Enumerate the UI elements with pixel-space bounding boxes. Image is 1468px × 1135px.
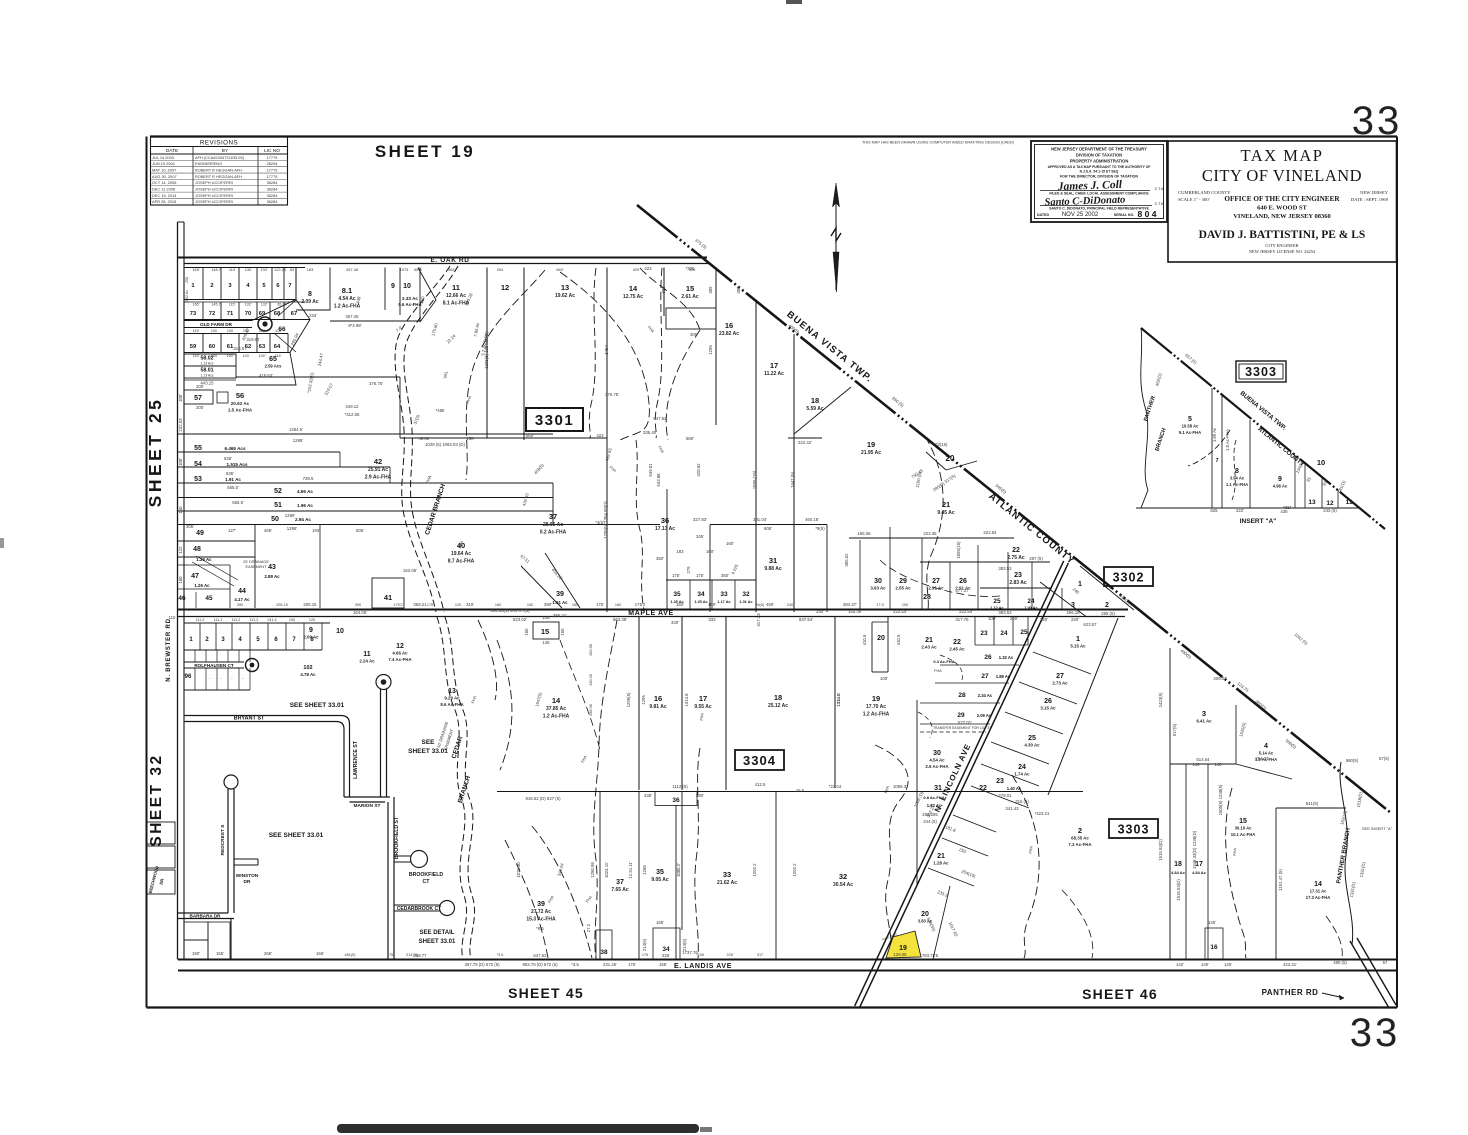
svg-text:32: 32 <box>839 872 847 881</box>
svg-text:165: 165 <box>572 603 578 607</box>
svg-text:383.53: 383.53 <box>998 610 1012 615</box>
svg-text:SHEET 25: SHEET 25 <box>145 397 165 508</box>
svg-text:REDCREST S: REDCREST S <box>220 824 226 856</box>
svg-text:100: 100 <box>211 354 217 358</box>
svg-text:19: 19 <box>872 694 880 703</box>
svg-text:0.2 Ac-FHA: 0.2 Ac-FHA <box>540 529 567 535</box>
svg-text:25: 25 <box>993 598 1001 605</box>
svg-text:1.00 Ac: 1.00 Ac <box>1024 606 1037 610</box>
svg-text:165': 165' <box>192 267 199 272</box>
svg-text:CEDARBROOK CT: CEDARBROOK CT <box>397 906 441 912</box>
svg-text:36284: 36284 <box>267 199 279 204</box>
svg-text:480 (5): 480 (5) <box>1333 960 1347 965</box>
svg-text:193': 193' <box>312 528 320 533</box>
svg-text:16: 16 <box>654 694 662 703</box>
svg-text:*23.04: *23.04 <box>829 784 842 789</box>
svg-text:68.35 Ac: 68.35 Ac <box>1071 836 1089 841</box>
svg-text:1.2 Ac-FHA: 1.2 Ac-FHA <box>863 711 890 717</box>
svg-text:305': 305' <box>690 332 698 337</box>
svg-text:25: 25 <box>1020 629 1028 636</box>
svg-text:FHA: FHA <box>1233 847 1238 855</box>
svg-text:523.02': 523.02' <box>513 617 527 622</box>
svg-text:390': 390' <box>544 602 552 607</box>
svg-text:2.34 Ac: 2.34 Ac <box>978 693 993 698</box>
svg-text:12: 12 <box>396 643 404 650</box>
svg-text:222.54': 222.54' <box>959 609 973 614</box>
svg-text:1.89 Ac: 1.89 Ac <box>996 674 1011 679</box>
svg-text:11: 11 <box>1346 499 1353 506</box>
svg-text:391.04': 391.04' <box>753 517 767 522</box>
svg-text:NOV 25 2002: NOV 25 2002 <box>1062 212 1099 218</box>
svg-text:825: 825 <box>1210 508 1218 513</box>
svg-text:11: 11 <box>452 283 460 292</box>
svg-text:12: 12 <box>501 283 509 292</box>
svg-text:837.54': 837.54' <box>799 617 813 622</box>
svg-text:783.75'5: 783.75'5 <box>922 953 939 958</box>
svg-text:37: 37 <box>549 512 557 521</box>
svg-text:8: 8 <box>308 291 312 298</box>
svg-text:22: 22 <box>979 785 987 792</box>
svg-text:165: 165 <box>524 628 529 636</box>
svg-text:EASEMENT: EASEMENT <box>246 565 268 569</box>
svg-text:541(5): 541(5) <box>1306 801 1319 806</box>
svg-text:*3.5: *3.5 <box>571 962 579 967</box>
svg-text:1334.0: 1334.0 <box>836 693 841 707</box>
svg-text:1295: 1295 <box>641 695 646 705</box>
svg-text:30.19 Ac: 30.19 Ac <box>1235 825 1253 830</box>
svg-text:41: 41 <box>384 593 392 602</box>
svg-text:DAVID J. BATTISTINI, PE & LS: DAVID J. BATTISTINI, PE & LS <box>1199 229 1366 241</box>
svg-text:132': 132' <box>245 303 252 307</box>
svg-text:4.17 Ac: 4.17 Ac <box>234 597 250 602</box>
svg-text:TRANSFER EASEMENT FOR LOT 31: TRANSFER EASEMENT FOR LOT 31 <box>933 726 991 730</box>
svg-text:SEE: SEE <box>421 739 435 746</box>
svg-text:42: 42 <box>374 457 382 466</box>
svg-text:7.4 Ac-FHA: 7.4 Ac-FHA <box>388 657 412 662</box>
svg-text:1284.5': 1284.5' <box>289 427 303 432</box>
svg-text:111.1: 111.1 <box>214 618 223 622</box>
svg-text:10: 10 <box>1317 458 1325 467</box>
svg-text:241.4: 241.4 <box>267 618 276 622</box>
svg-text:2.45 Ac: 2.45 Ac <box>949 647 965 652</box>
svg-text:13: 13 <box>561 283 569 292</box>
svg-text:15: 15 <box>541 627 549 636</box>
svg-text:1095 (15): 1095 (15) <box>752 470 757 489</box>
svg-text:100: 100 <box>211 329 217 333</box>
svg-text:ROLFHAUSEN CT: ROLFHAUSEN CT <box>194 663 233 668</box>
svg-text:3303: 3303 <box>1245 365 1277 379</box>
svg-text:14: 14 <box>629 284 638 293</box>
svg-text:264: 264 <box>497 267 504 272</box>
svg-text:115': 115' <box>229 303 236 307</box>
svg-text:36284: 36284 <box>267 193 279 198</box>
svg-text:2: 2 <box>210 283 213 289</box>
svg-text:*8(5): *8(5) <box>756 603 765 607</box>
svg-text:279: 279 <box>686 566 691 574</box>
svg-text:127': 127' <box>228 528 236 533</box>
svg-text:1250.98: 1250.98 <box>590 862 595 878</box>
svg-text:487 (5): 487 (5) <box>1029 556 1043 561</box>
svg-text:44: 44 <box>238 588 246 595</box>
svg-text:20.62 Ac: 20.62 Ac <box>231 401 250 406</box>
svg-text:2.89 Ac: 2.89 Ac <box>264 574 280 579</box>
svg-text:BROOKFIELD ST: BROOKFIELD ST <box>394 816 400 859</box>
svg-text:54: 54 <box>194 461 202 468</box>
svg-text:CUMBERLAND COUNTY: CUMBERLAND COUNTY <box>1178 190 1231 195</box>
svg-text:623.57: 623.57 <box>1083 622 1097 627</box>
svg-text:8 0 4: 8 0 4 <box>1138 209 1157 219</box>
svg-text:1447 (5): 1447 (5) <box>790 471 795 488</box>
svg-text:818.52 (D) 827 (5): 818.52 (D) 827 (5) <box>525 796 561 801</box>
svg-text:23: 23 <box>980 630 988 637</box>
svg-text:10: 10 <box>336 628 344 635</box>
svg-text:140: 140 <box>1192 762 1200 767</box>
svg-text:660': 660' <box>526 433 534 438</box>
svg-text:429: 429 <box>633 267 640 272</box>
svg-text:40: 40 <box>457 541 465 550</box>
svg-text:155': 155' <box>659 962 667 967</box>
svg-text:MAY 10, 2007: MAY 10, 2007 <box>152 167 176 172</box>
svg-text:36: 36 <box>672 797 680 804</box>
svg-text:222.42': 222.42' <box>798 440 812 445</box>
svg-text:*3.5: *3.5 <box>497 953 504 957</box>
svg-text:200': 200' <box>1010 616 1018 621</box>
svg-text:3.94 Ac: 3.94 Ac <box>1230 475 1245 480</box>
svg-text:175'2: 175'2 <box>635 602 646 607</box>
svg-text:16.5: 16.5 <box>796 788 805 793</box>
svg-text:3: 3 <box>1202 709 1206 718</box>
svg-text:17775: 17775 <box>267 167 278 172</box>
svg-text:234': 234' <box>309 313 317 318</box>
svg-text:464.53(5) 444 4.7(3): 464.53(5) 444 4.7(3) <box>490 608 530 613</box>
svg-text:29: 29 <box>957 712 965 719</box>
svg-text:258: 258 <box>185 277 189 283</box>
svg-text:SCALE 1″ - 300′: SCALE 1″ - 300′ <box>1178 197 1210 202</box>
svg-text:MARION ST: MARION ST <box>354 803 381 809</box>
svg-text:N.J.S.A. 54:1-15 ET SEQ: N.J.S.A. 54:1-15 ET SEQ <box>1080 170 1119 174</box>
svg-text:28.65 Ac: 28.65 Ac <box>543 522 563 528</box>
svg-text:OLD FARM DR: OLD FARM DR <box>200 322 233 327</box>
svg-text:53: 53 <box>194 476 202 483</box>
svg-text:17.70 Ac: 17.70 Ac <box>866 704 886 710</box>
svg-text:1295(5): 1295(5) <box>626 692 631 707</box>
svg-text:150': 150' <box>676 602 684 607</box>
svg-text:WINSTON: WINSTON <box>236 873 259 879</box>
svg-text:10: 10 <box>403 283 411 290</box>
svg-text:160: 160 <box>178 576 183 584</box>
svg-text:2.55 Ac: 2.55 Ac <box>895 586 911 591</box>
svg-text:140: 140 <box>1214 762 1222 767</box>
svg-text:9.29 Ac: 9.29 Ac <box>444 696 460 701</box>
svg-text:423: 423 <box>644 266 652 271</box>
svg-text:21.62 Ac: 21.62 Ac <box>717 880 737 886</box>
svg-text:3304: 3304 <box>743 753 776 768</box>
svg-text:30.54 Ac: 30.54 Ac <box>833 882 853 888</box>
svg-text:DEC 11 2008: DEC 11 2008 <box>152 187 175 192</box>
svg-text:3.15 Ac: 3.15 Ac <box>1040 706 1056 711</box>
svg-text:5.14 Ac: 5.14 Ac <box>1259 750 1274 755</box>
svg-text:9.88 Ac: 9.88 Ac <box>764 566 782 572</box>
svg-text:148.7: 148.7 <box>211 267 221 272</box>
svg-text:243 (5): 243 (5) <box>1323 508 1337 513</box>
svg-text:1295: 1295 <box>708 345 713 355</box>
svg-text:1.2 Ac-FHA: 1.2 Ac-FHA <box>543 713 570 719</box>
svg-text:200': 200' <box>196 405 204 410</box>
svg-text:BROOKFIELD: BROOKFIELD <box>409 872 444 878</box>
svg-text:100: 100 <box>289 618 295 622</box>
svg-text:660': 660' <box>686 436 694 441</box>
svg-text:71: 71 <box>227 311 234 317</box>
svg-text:12.75 Ac: 12.75 Ac <box>623 294 643 300</box>
svg-text:345': 345' <box>696 534 704 539</box>
svg-text:59: 59 <box>190 344 197 350</box>
svg-text:APR 28, 2015: APR 28, 2015 <box>152 199 176 204</box>
svg-text:17.13 Ac: 17.13 Ac <box>655 526 675 532</box>
svg-text:635': 635' <box>226 471 234 476</box>
svg-text:1295': 1295' <box>287 526 298 531</box>
svg-text:175': 175' <box>628 962 636 967</box>
svg-text:LIC NO: LIC NO <box>264 148 280 154</box>
svg-text:1292.2: 1292.2 <box>792 863 797 877</box>
svg-text:21: 21 <box>937 853 945 860</box>
svg-text:11: 11 <box>363 651 371 658</box>
svg-text:577.37: 577.37 <box>955 588 969 593</box>
svg-text:1.5 Ac-FHA: 1.5 Ac-FHA <box>228 408 253 413</box>
svg-text:376.75': 376.75' <box>605 392 619 397</box>
svg-text:65.75: 65.75 <box>277 303 286 307</box>
svg-text:335.40': 335.40' <box>643 430 657 435</box>
svg-text:1515.53(D): 1515.53(D) <box>1158 839 1163 861</box>
svg-text:2.94 Ac: 2.94 Ac <box>295 517 311 522</box>
svg-text:33: 33 <box>1352 99 1403 143</box>
svg-text:SHEET 46: SHEET 46 <box>1082 986 1158 1002</box>
svg-text:SHEET 45: SHEET 45 <box>508 985 584 1001</box>
svg-text:17.5: 17.5 <box>876 603 883 607</box>
svg-text:34: 34 <box>662 946 670 953</box>
svg-text:1075: 1075 <box>400 267 409 272</box>
svg-text:460.18': 460.18' <box>805 517 819 522</box>
svg-text:305': 305' <box>186 524 194 529</box>
svg-text:327.83': 327.83' <box>693 517 707 522</box>
svg-text:505': 505' <box>356 528 364 533</box>
svg-text:130: 130 <box>245 267 252 272</box>
svg-text:4.78 Ac: 4.78 Ac <box>300 672 316 677</box>
svg-text:1112 (5): 1112 (5) <box>672 784 688 789</box>
svg-text:120: 120 <box>309 618 315 622</box>
svg-text:27.72 Ac: 27.72 Ac <box>531 909 551 915</box>
svg-text:33: 33 <box>720 591 728 598</box>
svg-text:104': 104' <box>259 354 266 358</box>
svg-text:1080.2': 1080.2' <box>676 863 681 877</box>
svg-text:226': 226' <box>662 953 670 958</box>
svg-text:3.93 Ac: 3.93 Ac <box>870 586 886 591</box>
svg-text:222.54': 222.54' <box>893 609 907 614</box>
svg-text:17: 17 <box>699 694 707 703</box>
svg-text:4.84 Ac: 4.84 Ac <box>1192 870 1207 875</box>
svg-text:27: 27 <box>932 578 940 585</box>
svg-text:47: 47 <box>191 573 199 580</box>
svg-text:4.66 Ac: 4.66 Ac <box>392 651 408 656</box>
svg-text:222': 222' <box>1236 508 1244 513</box>
svg-text:436.06: 436.06 <box>589 704 593 716</box>
svg-text:9: 9 <box>309 627 313 634</box>
svg-text:*485: *485 <box>436 408 445 413</box>
svg-text:7.3 Ac-FHA: 7.3 Ac-FHA <box>1068 842 1092 847</box>
svg-text:8: 8 <box>1235 468 1239 475</box>
svg-text:160: 160 <box>615 603 621 607</box>
svg-text:JOSEPH UCCIFERRI: JOSEPH UCCIFERRI <box>195 193 233 198</box>
svg-text:205.15: 205.15 <box>303 602 317 607</box>
svg-text:577.01': 577.01' <box>958 720 972 725</box>
svg-text:VINELAND, NEW JERSEY 08360: VINELAND, NEW JERSEY 08360 <box>1233 213 1331 220</box>
svg-text:2.83 Ac: 2.83 Ac <box>1009 580 1027 586</box>
svg-text:4.30 Ac: 4.30 Ac <box>1024 743 1040 748</box>
svg-text:1.40 Ac: 1.40 Ac <box>1007 786 1022 791</box>
svg-text:150: 150 <box>178 506 183 514</box>
svg-text:1.74 Ac: 1.74 Ac <box>1014 772 1030 777</box>
svg-text:1.01 Ac: 1.01 Ac <box>739 600 752 604</box>
svg-text:132': 132' <box>261 303 268 307</box>
svg-text:12.51.11': 12.51.11' <box>628 861 633 878</box>
svg-text:SHEET 33.01: SHEET 33.01 <box>408 748 448 755</box>
svg-text:7: 7 <box>1215 458 1218 464</box>
svg-text:100: 100 <box>902 603 908 607</box>
svg-text:2.33 Ac: 2.33 Ac <box>402 296 418 301</box>
svg-text:*306: *306 <box>686 266 695 271</box>
svg-text:357.78 (D) 672 (5): 357.78 (D) 672 (5) <box>464 962 500 967</box>
svg-text:30: 30 <box>874 578 882 585</box>
svg-text:*312.55: *312.55 <box>345 412 360 417</box>
svg-text:155': 155' <box>656 920 664 925</box>
svg-text:*49.62: *49.62 <box>417 436 430 441</box>
svg-text:1.1 Ac-FHA: 1.1 Ac-FHA <box>1226 482 1248 487</box>
svg-text:175': 175' <box>596 602 604 607</box>
svg-text:DIVISION OF TAXATION: DIVISION OF TAXATION <box>1076 153 1122 158</box>
svg-text:647.62: 647.62 <box>533 953 547 958</box>
svg-text:1505(5) 1238(5): 1505(5) 1238(5) <box>1218 784 1223 815</box>
svg-text:25: 25 <box>1028 735 1036 742</box>
svg-text:160': 160' <box>706 549 714 554</box>
svg-text:JOSEPH UCCIFERRI: JOSEPH UCCIFERRI <box>195 180 233 185</box>
svg-text:12.66 Ac: 12.66 Ac <box>446 293 466 299</box>
svg-text:67: 67 <box>291 311 297 317</box>
svg-text:130': 130' <box>260 267 267 272</box>
svg-text:12: 12 <box>1326 500 1334 507</box>
svg-text:19.62 Ac: 19.62 Ac <box>555 293 575 299</box>
svg-text:NEW JERSEY LICENSE NO. 24254: NEW JERSEY LICENSE NO. 24254 <box>1249 249 1316 254</box>
svg-text:317.76: 317.76 <box>955 617 969 622</box>
svg-text:457.48: 457.48 <box>346 267 358 272</box>
svg-text:111.2: 111.2 <box>250 618 259 622</box>
svg-text:LAWRENCE ST: LAWRENCE ST <box>353 740 359 779</box>
svg-text:319.67: 319.67 <box>246 337 260 342</box>
svg-text:SANTO C. DIDONATO, PRINCIPAL F: SANTO C. DIDONATO, PRINCIPAL FIELD REPRE… <box>1049 207 1149 211</box>
svg-text:9.05 Ac: 9.05 Ac <box>651 877 669 883</box>
svg-text:2.9 Ac-FHA: 2.9 Ac-FHA <box>365 474 392 480</box>
svg-text:SEE SHEET 33.01: SEE SHEET 33.01 <box>290 702 345 709</box>
svg-text:111.2: 111.2 <box>232 618 241 622</box>
svg-text:175: 175 <box>427 603 433 607</box>
svg-text:164.06': 164.06' <box>353 610 367 615</box>
svg-text:10.1 Ac-FHA: 10.1 Ac-FHA <box>1231 832 1256 837</box>
svg-text:222.35: 222.35 <box>923 531 937 536</box>
svg-text:316 (5): 316 (5) <box>1015 799 1029 804</box>
svg-text:39: 39 <box>556 591 564 598</box>
svg-text:1.02 Ac: 1.02 Ac <box>185 290 189 302</box>
svg-text:13: 13 <box>448 688 456 695</box>
svg-text:200': 200' <box>196 384 204 389</box>
svg-text:1029 (5) 1093.03 (D): 1029 (5) 1093.03 (D) <box>425 442 465 447</box>
svg-text:TAX MAP: TAX MAP <box>1241 146 1324 165</box>
svg-text:DEC 15, 2014: DEC 15, 2014 <box>152 193 177 198</box>
svg-text:E. LANDIS AVE: E. LANDIS AVE <box>674 963 732 970</box>
svg-text:580(5): 580(5) <box>1346 758 1359 763</box>
svg-text:REVISIONS: REVISIONS <box>200 140 238 147</box>
svg-text:83: 83 <box>290 267 294 272</box>
svg-text:18: 18 <box>1174 861 1182 868</box>
svg-text:23: 23 <box>1014 572 1022 579</box>
svg-text:309: 309 <box>661 286 666 294</box>
svg-text:305.52: 305.52 <box>844 553 849 567</box>
svg-text:3301: 3301 <box>535 412 574 429</box>
svg-text:PROPERTY ADMINISTRATION: PROPERTY ADMINISTRATION <box>1070 159 1129 164</box>
svg-text:49: 49 <box>196 530 204 537</box>
svg-text:543.88: 543.88 <box>656 473 661 487</box>
svg-text:555.5': 555.5' <box>227 485 239 490</box>
svg-text:25' DRAINAGE: 25' DRAINAGE <box>243 560 269 564</box>
svg-text:226': 226' <box>726 953 733 957</box>
svg-text:56: 56 <box>236 391 244 400</box>
svg-text:31: 31 <box>934 785 942 792</box>
svg-text:7: 7 <box>288 283 291 289</box>
svg-text:*8.5: *8.5 <box>536 926 544 931</box>
svg-text:17: 17 <box>770 361 778 370</box>
svg-text:214(5): 214(5) <box>642 938 647 951</box>
svg-text:265': 265' <box>264 528 272 533</box>
svg-text:410.5: 410.5 <box>896 634 901 645</box>
svg-text:4.54 Ac: 4.54 Ac <box>929 758 945 763</box>
svg-text:*9(5): *9(5) <box>815 526 825 531</box>
svg-text:953.78 (D) 672 (5): 953.78 (D) 672 (5) <box>522 962 558 967</box>
svg-text:175': 175' <box>696 573 704 578</box>
svg-text:158: 158 <box>466 436 474 441</box>
svg-text:183: 183 <box>307 267 314 272</box>
svg-text:240: 240 <box>787 603 793 607</box>
svg-text:110: 110 <box>169 615 176 620</box>
svg-text:THIS MAP HAS BEEN DRAWN USING: THIS MAP HAS BEEN DRAWN USING COMPUTER A… <box>862 141 1015 145</box>
svg-text:CITY OF VINELAND: CITY OF VINELAND <box>1202 166 1362 185</box>
svg-text:4.65 Ac: 4.65 Ac <box>297 489 313 494</box>
svg-text:73: 73 <box>190 311 197 317</box>
svg-text:N. BREWSTER RD: N. BREWSTER RD <box>166 618 172 682</box>
svg-text:22: 22 <box>953 639 961 646</box>
svg-text:5.15 Ac: 5.15 Ac <box>1070 644 1086 649</box>
svg-text:23: 23 <box>996 778 1004 785</box>
svg-text:*4(5): *4(5) <box>595 520 605 525</box>
svg-text:DATE : SEPT. 1969: DATE : SEPT. 1969 <box>1351 197 1389 202</box>
svg-text:57: 57 <box>1383 960 1388 965</box>
svg-text:43: 43 <box>268 564 276 571</box>
svg-text:21: 21 <box>925 637 933 644</box>
svg-text:1.0 Ac-FHA: 1.0 Ac-FHA <box>1225 429 1230 451</box>
svg-text:1059.3': 1059.3' <box>893 784 907 789</box>
svg-text:22: 22 <box>1012 547 1020 554</box>
svg-text:310': 310' <box>466 602 474 607</box>
svg-text:25.91 Ac: 25.91 Ac <box>368 467 388 473</box>
svg-text:115: 115 <box>275 329 281 333</box>
svg-text:1.13 Acs: 1.13 Acs <box>200 362 213 366</box>
svg-text:17.3 Ac-FHA: 17.3 Ac-FHA <box>1306 895 1331 900</box>
